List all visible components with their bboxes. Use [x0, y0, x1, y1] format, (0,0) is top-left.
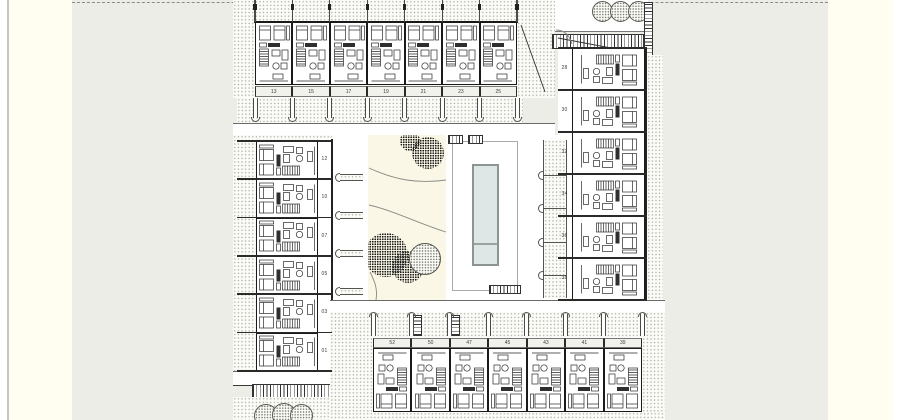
unit-number-label: 13 — [255, 86, 292, 97]
unit-cell — [527, 348, 565, 412]
unit-furniture — [565, 349, 603, 412]
unit-cell — [572, 174, 645, 216]
unit-furniture-plan — [527, 349, 565, 412]
door-swing-arc — [638, 312, 647, 317]
unit-furniture — [405, 22, 442, 85]
party-wall — [558, 215, 647, 217]
planter-divider — [543, 208, 567, 209]
unit-furniture — [330, 22, 367, 85]
unit-number-label: 32 — [558, 150, 571, 155]
party-wall — [237, 293, 332, 295]
unit-furniture-plan — [292, 22, 329, 85]
unit-furniture — [256, 256, 318, 294]
door-swing-arc — [407, 312, 416, 317]
patio-post — [515, 4, 518, 10]
door-swing-arc — [599, 312, 608, 317]
unit-number-label: 19 — [367, 86, 404, 97]
unit-number-label: 28 — [558, 66, 571, 71]
left-margin — [9, 0, 72, 420]
unit-cell — [565, 348, 603, 412]
door-swing-arc — [445, 312, 454, 317]
swimming-pool — [472, 164, 499, 266]
party-wall — [558, 257, 647, 259]
unit-furniture — [412, 349, 450, 412]
unit-furniture-plan — [450, 349, 488, 412]
unit-number-label: 01 — [318, 349, 331, 354]
unit-number-label: 25 — [480, 86, 517, 97]
party-wall — [237, 370, 332, 372]
unit-furniture — [577, 260, 640, 298]
unit-cell — [411, 348, 449, 412]
unit-number-label: 12 — [318, 157, 331, 162]
patio-post — [291, 4, 294, 10]
unit-furniture-plan — [442, 22, 479, 85]
forecourt-pier — [409, 314, 414, 336]
forecourt-pier — [524, 314, 529, 336]
unit-cell — [373, 348, 411, 412]
unit-cell — [604, 348, 642, 412]
unit-furniture-plan — [604, 349, 642, 412]
lane-planter — [340, 212, 363, 219]
door-swing-arc — [538, 204, 543, 213]
unit-cell — [572, 132, 645, 174]
door-swing-arc — [363, 117, 372, 122]
unit-number-label: 47 — [450, 338, 488, 348]
planter-divider — [543, 175, 567, 176]
tree-icon — [409, 243, 441, 275]
door-swing-arc — [438, 117, 447, 122]
unit-cell — [480, 22, 517, 85]
unit-furniture-plan — [480, 22, 517, 85]
unit-furniture — [256, 333, 318, 371]
forecourt-pier — [563, 314, 568, 336]
planter-divider — [543, 275, 567, 276]
unit-number-label: 38 — [558, 276, 571, 281]
door-swing-arc — [538, 238, 543, 247]
patio-post — [478, 4, 481, 10]
door-swing-arc — [561, 312, 570, 317]
forecourt-pier — [601, 314, 606, 336]
unit-cell — [256, 179, 318, 217]
unit-number-label: 07 — [318, 234, 331, 239]
unit-number-label: 50 — [411, 338, 449, 348]
unit-cell — [292, 22, 329, 85]
unit-number-label: 03 — [318, 310, 331, 315]
lane-planter — [340, 174, 363, 181]
right-margin — [828, 0, 893, 420]
party-wall — [237, 140, 332, 142]
bottom-right-yard — [642, 312, 665, 420]
unit-furniture-plan — [565, 349, 603, 412]
unit-furniture-plan — [405, 22, 442, 85]
deck-grate — [468, 135, 483, 144]
door-swing-arc — [335, 287, 340, 296]
site-plan-sheet: 13 15 — [0, 0, 900, 420]
driveway-pier — [290, 98, 295, 118]
unit-number-label: 39 — [604, 338, 642, 348]
right-page-edge — [893, 0, 900, 420]
unit-number-label: 52 — [373, 338, 411, 348]
deck-grate — [448, 135, 463, 144]
courtyard-garden — [368, 135, 446, 300]
unit-furniture — [527, 349, 565, 412]
bottom-left-yard — [330, 312, 373, 420]
unit-furniture — [255, 22, 292, 85]
driveway-pier — [477, 98, 482, 118]
unit-cell — [450, 348, 488, 412]
unit-furniture — [488, 349, 526, 412]
tree-icon — [290, 404, 313, 420]
unit-furniture-plan — [255, 22, 292, 85]
driveway-pier — [440, 98, 445, 118]
unit-cell — [442, 22, 479, 85]
unit-furniture-plan — [367, 22, 404, 85]
unit-number-label: 23 — [442, 86, 479, 97]
unit-cell — [256, 218, 318, 256]
unit-furniture — [373, 349, 411, 412]
unit-number-label: 15 — [292, 86, 329, 97]
unit-furniture — [256, 218, 318, 256]
unit-furniture-plan — [373, 349, 411, 412]
door-swing-arc — [335, 249, 340, 258]
driveway-pier — [327, 98, 332, 118]
unit-cell — [255, 22, 292, 85]
unit-number-label: 21 — [405, 86, 442, 97]
patio-post — [403, 4, 406, 10]
lane-planter — [340, 288, 363, 295]
unit-cell — [256, 294, 318, 332]
unit-furniture-plan — [256, 141, 318, 179]
right-wing-yard — [647, 55, 663, 300]
patio-post — [441, 4, 444, 10]
unit-number-label: 34 — [558, 192, 571, 197]
door-swing-arc — [484, 312, 493, 317]
unit-cell — [572, 90, 645, 132]
left-page-edge — [0, 0, 7, 420]
unit-number-label: 05 — [318, 272, 331, 277]
driveway-pier — [365, 98, 370, 118]
party-wall — [237, 178, 332, 180]
unit-cell — [488, 348, 526, 412]
party-wall — [237, 332, 332, 334]
unit-furniture — [577, 176, 640, 214]
deck-grate — [489, 285, 521, 294]
party-wall — [558, 47, 647, 49]
unit-number-label: 41 — [565, 338, 603, 348]
driveway-pier — [515, 98, 520, 118]
door-swing-arc — [369, 312, 378, 317]
forecourt-pier — [447, 314, 452, 336]
unit-furniture — [577, 50, 640, 88]
unit-furniture — [480, 22, 517, 85]
unit-cell — [572, 216, 645, 258]
unit-furniture-plan — [577, 134, 640, 172]
unit-furniture — [450, 349, 488, 412]
door-swing-arc — [335, 211, 340, 220]
unit-furniture-plan — [577, 50, 640, 88]
unit-furniture-plan — [256, 294, 318, 332]
driveway-pier — [402, 98, 407, 118]
unit-furniture-plan — [256, 179, 318, 217]
unit-number-label: 43 — [527, 338, 565, 348]
party-wall — [558, 299, 647, 301]
unit-cell — [572, 258, 645, 300]
planter-divider — [543, 242, 567, 243]
party-wall — [558, 173, 647, 175]
unit-cell — [405, 22, 442, 85]
unit-number-label: 17 — [330, 86, 367, 97]
unit-furniture-plan — [577, 260, 640, 298]
unit-furniture — [292, 22, 329, 85]
forecourt-pier — [486, 314, 491, 336]
unit-number-label: 30 — [558, 108, 571, 113]
door-swing-arc — [335, 173, 340, 182]
unit-cell — [367, 22, 404, 85]
party-wall — [558, 89, 647, 91]
unit-furniture-plan — [256, 256, 318, 294]
unit-furniture — [577, 218, 640, 256]
party-wall — [558, 131, 647, 133]
unit-furniture-plan — [577, 92, 640, 130]
unit-furniture-plan — [256, 218, 318, 256]
unit-furniture — [442, 22, 479, 85]
party-wall — [237, 217, 332, 219]
unit-cell — [256, 256, 318, 294]
forecourt-pier — [371, 314, 376, 336]
patio-post — [366, 4, 369, 10]
unit-furniture — [604, 349, 642, 412]
door-swing-arc — [538, 271, 543, 280]
lane-planter — [340, 250, 363, 257]
unit-furniture — [577, 134, 640, 172]
unit-cell — [256, 141, 318, 179]
unit-furniture-plan — [330, 22, 367, 85]
unit-furniture-plan — [256, 333, 318, 371]
party-wall — [237, 255, 332, 257]
unit-furniture-plan — [412, 349, 450, 412]
unit-furniture-plan — [577, 218, 640, 256]
unit-furniture — [256, 141, 318, 179]
bottom-ground-strip — [330, 412, 665, 420]
unit-number-label: 10 — [318, 195, 331, 200]
unit-cell — [572, 48, 645, 90]
door-swing-arc — [538, 171, 543, 180]
unit-furniture — [367, 22, 404, 85]
forecourt-pier — [640, 314, 645, 336]
door-swing-arc — [513, 117, 522, 122]
unit-number-label: 45 — [488, 338, 526, 348]
unit-furniture-plan — [488, 349, 526, 412]
unit-cell — [330, 22, 367, 85]
unit-cell — [256, 333, 318, 371]
driveway-pier — [253, 98, 258, 118]
patio-post — [253, 4, 256, 10]
door-swing-arc — [251, 117, 260, 122]
patio-post — [328, 4, 331, 10]
pool-shallow-step-divider — [474, 243, 497, 245]
door-swing-arc — [522, 312, 531, 317]
unit-furniture — [256, 294, 318, 332]
unit-furniture-plan — [577, 176, 640, 214]
unit-furniture — [256, 179, 318, 217]
unit-number-label: 36 — [558, 234, 571, 239]
unit-furniture — [577, 92, 640, 130]
